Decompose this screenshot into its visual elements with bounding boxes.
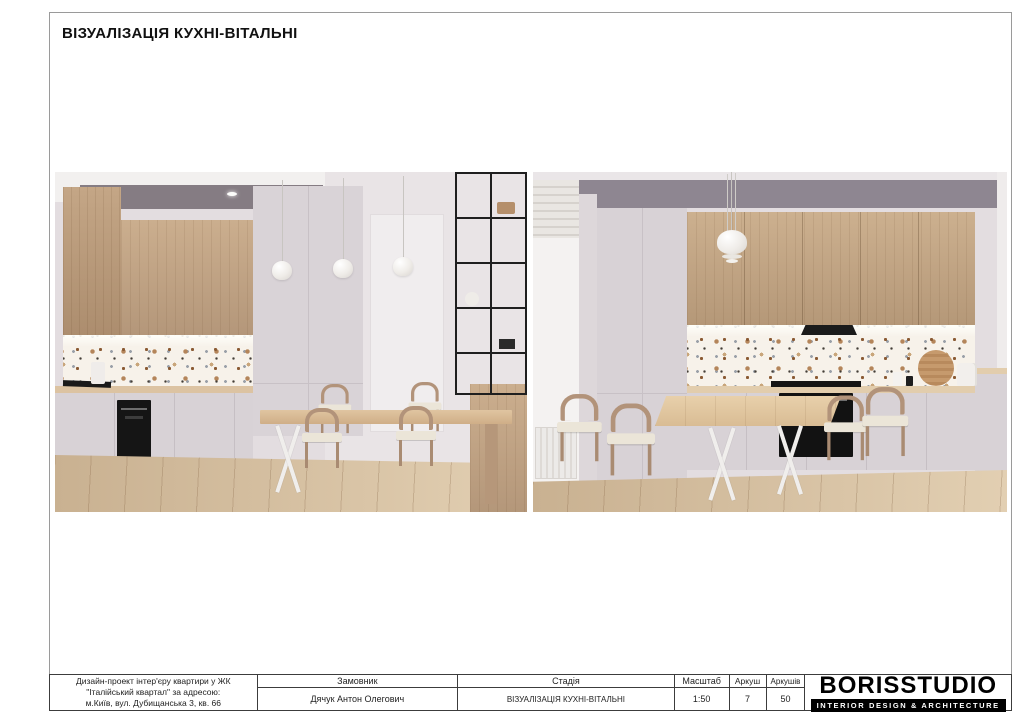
stage-cell: Стадія ВІЗУАЛІЗАЦІЯ КУХНІ-ВІТАЛЬНІ [458,675,675,710]
pendant-lamp [393,176,413,276]
dining-chair [866,387,917,463]
sheet-value: 7 [730,688,766,710]
countertop [55,386,253,393]
dining-chair [399,406,443,472]
scale-cell: Масштаб 1:50 [675,675,730,710]
chair-seat [862,416,908,426]
ceiling-spotlight [227,192,237,196]
round-cutting-board [918,350,954,386]
table-leg-wood [485,424,497,504]
roman-blind [533,180,579,238]
metal-shelving-rack [455,172,527,395]
customer-label: Замовник [258,675,458,688]
tall-cabinet-seam-h [597,393,687,394]
shelf-decor-vase [465,292,479,306]
dining-chair [305,408,349,474]
right-wall-sliver [997,172,1007,368]
pendant-tier-ring [726,259,738,263]
chair-seat [824,422,867,432]
table-leg-cross [703,426,737,502]
sheet-cell: Аркуш 7 [730,675,767,710]
gas-cooktop [771,381,861,387]
kitchen-render-left [55,172,527,512]
oven-handle [121,408,147,410]
chair-legs [862,426,908,456]
upper-cabinet-wood-column [63,187,121,337]
pendant-lamp-tiered [717,230,747,254]
chair-legs [302,442,342,468]
chair-back [866,387,905,415]
pantry-door-seam [308,186,309,436]
kettle [957,363,975,386]
scale-label: Масштаб [675,675,729,688]
sheets-label: Аркушів [767,675,805,688]
wood-partition-island [470,384,527,512]
pendant-cords [731,172,732,234]
chair-seat [302,433,342,442]
cooker-hood [801,325,857,335]
table-leg-cross [269,424,303,494]
title-block: Дизайн-проект інтер'єру квартири у ЖК "І… [49,674,1012,711]
project-line: м.Київ, вул. Дубищанська 3, кв. 66 [86,698,221,709]
stage-value: ВІЗУАЛІЗАЦІЯ КУХНІ-ВІТАЛЬНІ [458,688,674,710]
soffit-band [579,180,1007,208]
customer-value: Дячук Антон Олегович [258,688,458,710]
project-line: Дизайн-проект інтер'єру квартири у ЖК [76,676,231,687]
chair-back [399,406,433,430]
chair-back [560,394,598,421]
chair-back [611,403,652,432]
project-line: "Італійський квартал" за адресою: [86,687,220,698]
countertop [687,386,1007,393]
upper-cabinet-wood-run [121,220,253,335]
chair-back [321,384,349,404]
kitchen-render-right [533,172,1007,512]
chair-seat [607,433,655,444]
table-leg-cross [771,424,805,496]
shelf-decor-wood [497,202,515,214]
chair-legs [396,440,436,466]
sheets-cell: Аркушів 50 [767,675,806,710]
dining-table-top [260,410,512,424]
stage-label: Стадія [458,675,674,688]
oven-controls [125,416,143,419]
undercabinet-light [63,335,253,347]
storage-jar [893,372,902,386]
chair-legs [607,444,655,475]
pendant-lamp [272,180,292,280]
chair-seat [396,431,436,440]
customer-cell: Замовник Дячук Антон Олегович [258,675,459,710]
chair-seat [557,422,602,432]
studio-logo: BORISSTUDIO INTERIOR DESIGN & ARCHITECTU… [805,675,1011,710]
storage-jar-dark [906,376,913,386]
chair-back [827,395,864,421]
scale-value: 1:50 [675,688,729,710]
project-description: Дизайн-проект інтер'єру квартири у ЖК "І… [50,675,258,710]
studio-logo-tagline: INTERIOR DESIGN & ARCHITECTURE [811,699,1006,712]
sheet-label: Аркуш [730,675,766,688]
sheets-value: 50 [767,688,805,710]
dining-chair [611,403,664,482]
dining-table-top [655,396,841,426]
pendant-lamp [333,178,353,278]
coffee-maker [91,362,105,384]
shelf-decor-black [499,339,515,349]
chair-legs [824,432,867,460]
chair-legs [557,432,602,461]
studio-logo-name: BORISSTUDIO [819,674,997,698]
chair-back [411,382,439,402]
chair-back [305,408,339,432]
page-title: ВІЗУАЛІЗАЦІЯ КУХНІ-ВІТАЛЬНІ [62,25,298,42]
dining-chair [560,394,609,468]
